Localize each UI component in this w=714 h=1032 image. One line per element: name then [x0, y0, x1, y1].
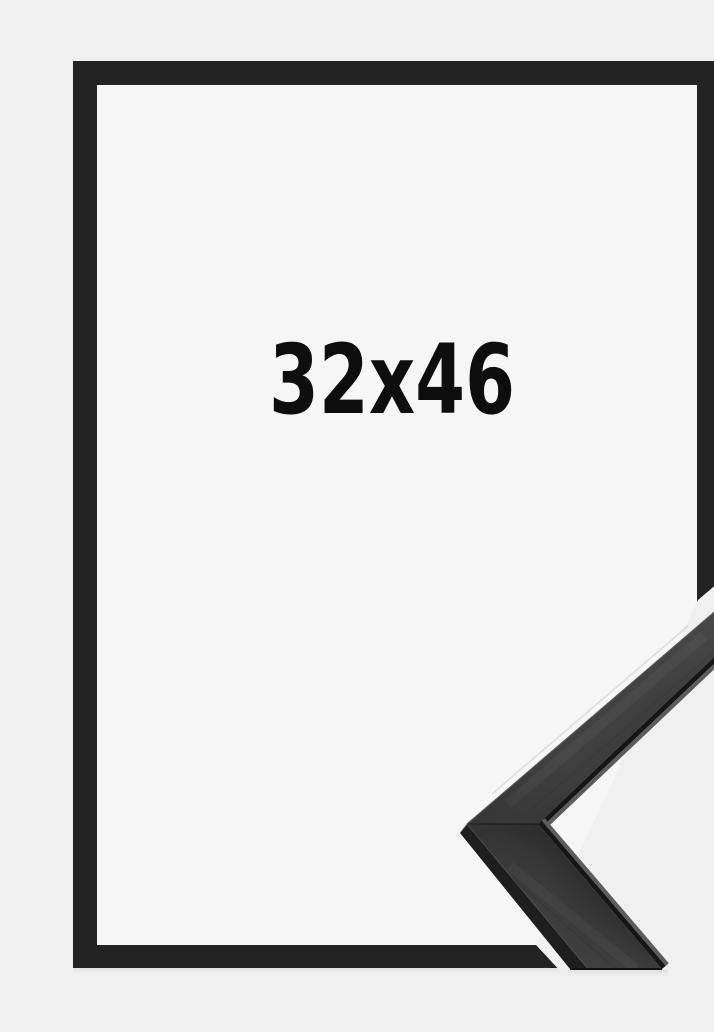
moulding-bottom-shadow	[568, 970, 668, 976]
frame-illustration: 32x46	[40, 16, 714, 1016]
frame-product-photo: 32x46	[40, 16, 714, 1016]
flat-frame-front-view	[73, 61, 714, 974]
size-label: 32x46	[269, 324, 515, 436]
